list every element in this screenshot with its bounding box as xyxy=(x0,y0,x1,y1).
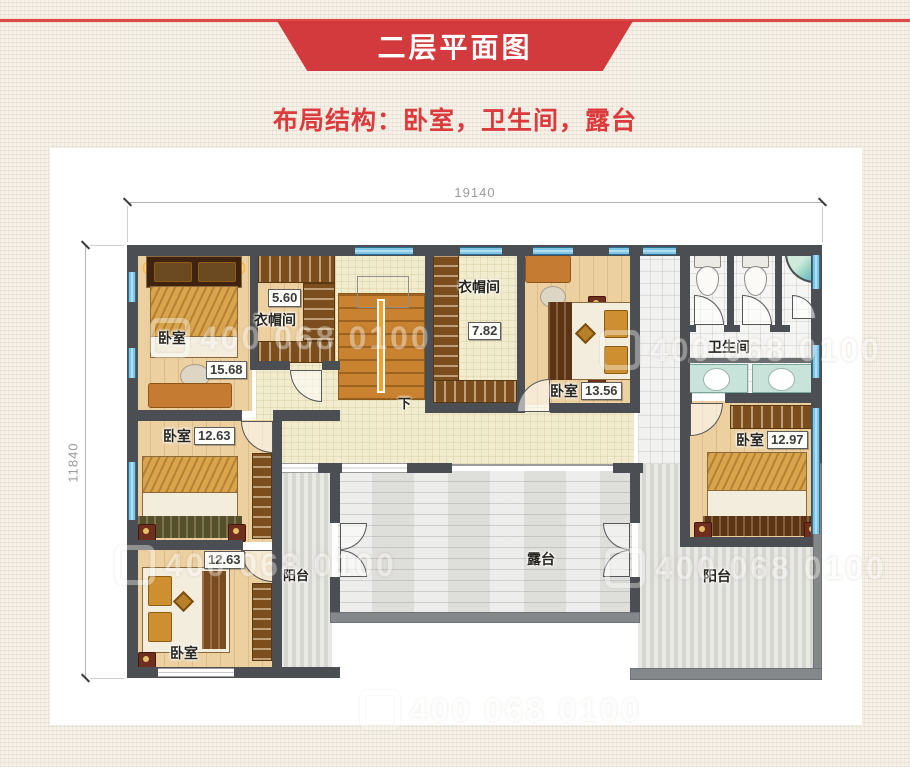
wardrobe xyxy=(730,405,813,429)
room-label-bedroom-tr: 卧室 13.56 xyxy=(550,381,622,401)
stall-wall xyxy=(690,325,696,332)
window xyxy=(128,272,136,302)
pillar xyxy=(407,463,452,473)
area-tag-cloak-mid: 7.82 xyxy=(468,322,501,340)
stall-wall xyxy=(727,253,734,327)
bed-ml-quilt xyxy=(142,456,238,494)
wall xyxy=(272,421,282,668)
room-label-bathroom: 卫生间 xyxy=(708,337,750,357)
wall xyxy=(273,410,340,421)
stall-wall xyxy=(770,325,790,332)
bed-bl-pillow xyxy=(148,612,172,642)
wardrobe xyxy=(258,341,335,363)
wall xyxy=(680,403,690,547)
stall-wall xyxy=(724,325,740,332)
area-tag-cloak-top: 5.60 xyxy=(268,289,301,307)
room-label-terrace: 露台 xyxy=(527,549,555,569)
wall xyxy=(425,403,525,413)
railing-window xyxy=(282,463,318,473)
window xyxy=(812,255,820,289)
bed-r-quilt xyxy=(707,452,807,492)
bed-tr-pillow xyxy=(604,346,628,374)
desk xyxy=(148,383,232,408)
title-banner: 二层平面图 xyxy=(277,21,633,71)
window xyxy=(460,247,502,255)
wall xyxy=(127,410,242,421)
dimension-line-left xyxy=(85,245,86,678)
dimension-line-top xyxy=(127,202,822,203)
sink-basin xyxy=(703,368,730,391)
bed-tr-edge xyxy=(548,302,572,380)
room-label-bedroom-tl: 卧室 xyxy=(158,328,186,348)
wardrobe xyxy=(303,283,335,341)
extension-line xyxy=(822,206,823,242)
room-label-balcony-right: 阳台 xyxy=(703,566,731,586)
bed-tl-pillow xyxy=(198,262,236,282)
bed-tl-pillow xyxy=(154,262,192,282)
terrace-edge-line xyxy=(452,464,613,466)
dimension-left-value: 11840 xyxy=(66,432,81,494)
sink-basin xyxy=(768,368,795,391)
bed-tr-pillow xyxy=(604,310,628,338)
wall xyxy=(725,393,822,403)
pillar xyxy=(318,463,342,473)
area-tag: 13.56 xyxy=(581,382,622,400)
page-title: 二层平面图 xyxy=(377,26,532,66)
area-tag-bedroom-tl: 15.68 xyxy=(206,361,247,379)
area-tag: 12.97 xyxy=(767,431,808,449)
extension-line xyxy=(90,245,124,246)
sink-counter-line xyxy=(688,358,813,363)
wall xyxy=(550,403,640,413)
wardrobe xyxy=(258,255,335,283)
wardrobe xyxy=(252,453,272,539)
terrace-wall xyxy=(330,473,340,523)
layout-subtitle: 布局结构：卧室，卫生间，露台 xyxy=(0,101,910,137)
wall xyxy=(680,245,690,403)
wall xyxy=(680,393,692,403)
floor-plan-page: 二层平面图 布局结构：卧室，卫生间，露台 xyxy=(0,0,910,767)
room-label-bedroom-ml: 卧室 12.63 xyxy=(163,426,235,446)
wardrobe xyxy=(252,583,272,661)
pillar xyxy=(613,463,643,473)
bed-ml-mid xyxy=(142,492,238,518)
window xyxy=(812,408,820,534)
room-label-bedroom-bl: 卧室 xyxy=(170,643,198,663)
room-name: 卧室 xyxy=(163,426,191,446)
hall-tile-floor xyxy=(638,252,682,464)
balcony-parapet xyxy=(630,668,822,680)
wall xyxy=(425,245,433,413)
terrace-floor xyxy=(338,471,632,614)
wall xyxy=(250,245,258,370)
extension-line xyxy=(90,678,124,679)
area-tag-bedroom-bl: 12.63 xyxy=(204,551,245,569)
desk xyxy=(525,255,571,283)
window xyxy=(609,247,629,255)
wall xyxy=(127,540,243,550)
room-name: 卧室 xyxy=(736,430,764,450)
room-label-bedroom-right: 卧室 12.97 xyxy=(736,430,808,450)
stair-railing xyxy=(377,299,385,393)
dimension-top-value: 19140 xyxy=(444,185,506,200)
window xyxy=(355,247,413,255)
room-name: 卧室 xyxy=(550,381,578,401)
wardrobe xyxy=(433,254,459,388)
wardrobe xyxy=(433,380,517,403)
bed-bl-edge xyxy=(202,571,226,649)
window xyxy=(128,348,136,378)
terrace-parapet xyxy=(330,612,640,623)
window xyxy=(158,668,234,677)
extension-line xyxy=(127,206,128,242)
railing-window xyxy=(342,463,407,473)
wall xyxy=(517,245,525,413)
bed-r-foot xyxy=(703,516,811,536)
stairs-down-label: 下 xyxy=(398,393,411,412)
window xyxy=(533,247,573,255)
room-label-balcony-left: 阳台 xyxy=(283,565,309,584)
window xyxy=(643,247,676,255)
wall xyxy=(322,361,340,370)
bed-r-mid xyxy=(707,490,807,518)
bed-bl-pillow xyxy=(148,576,172,606)
room-label-cloak-top: 衣帽间 xyxy=(254,310,296,330)
wall xyxy=(630,245,640,413)
window xyxy=(128,462,136,520)
wall xyxy=(680,537,822,547)
area-tag: 12.63 xyxy=(194,427,235,445)
stall-wall xyxy=(775,253,782,327)
wall xyxy=(250,361,290,370)
terrace-wall xyxy=(630,473,640,523)
room-label-cloak-mid: 衣帽间 xyxy=(458,277,500,297)
window xyxy=(812,345,820,378)
